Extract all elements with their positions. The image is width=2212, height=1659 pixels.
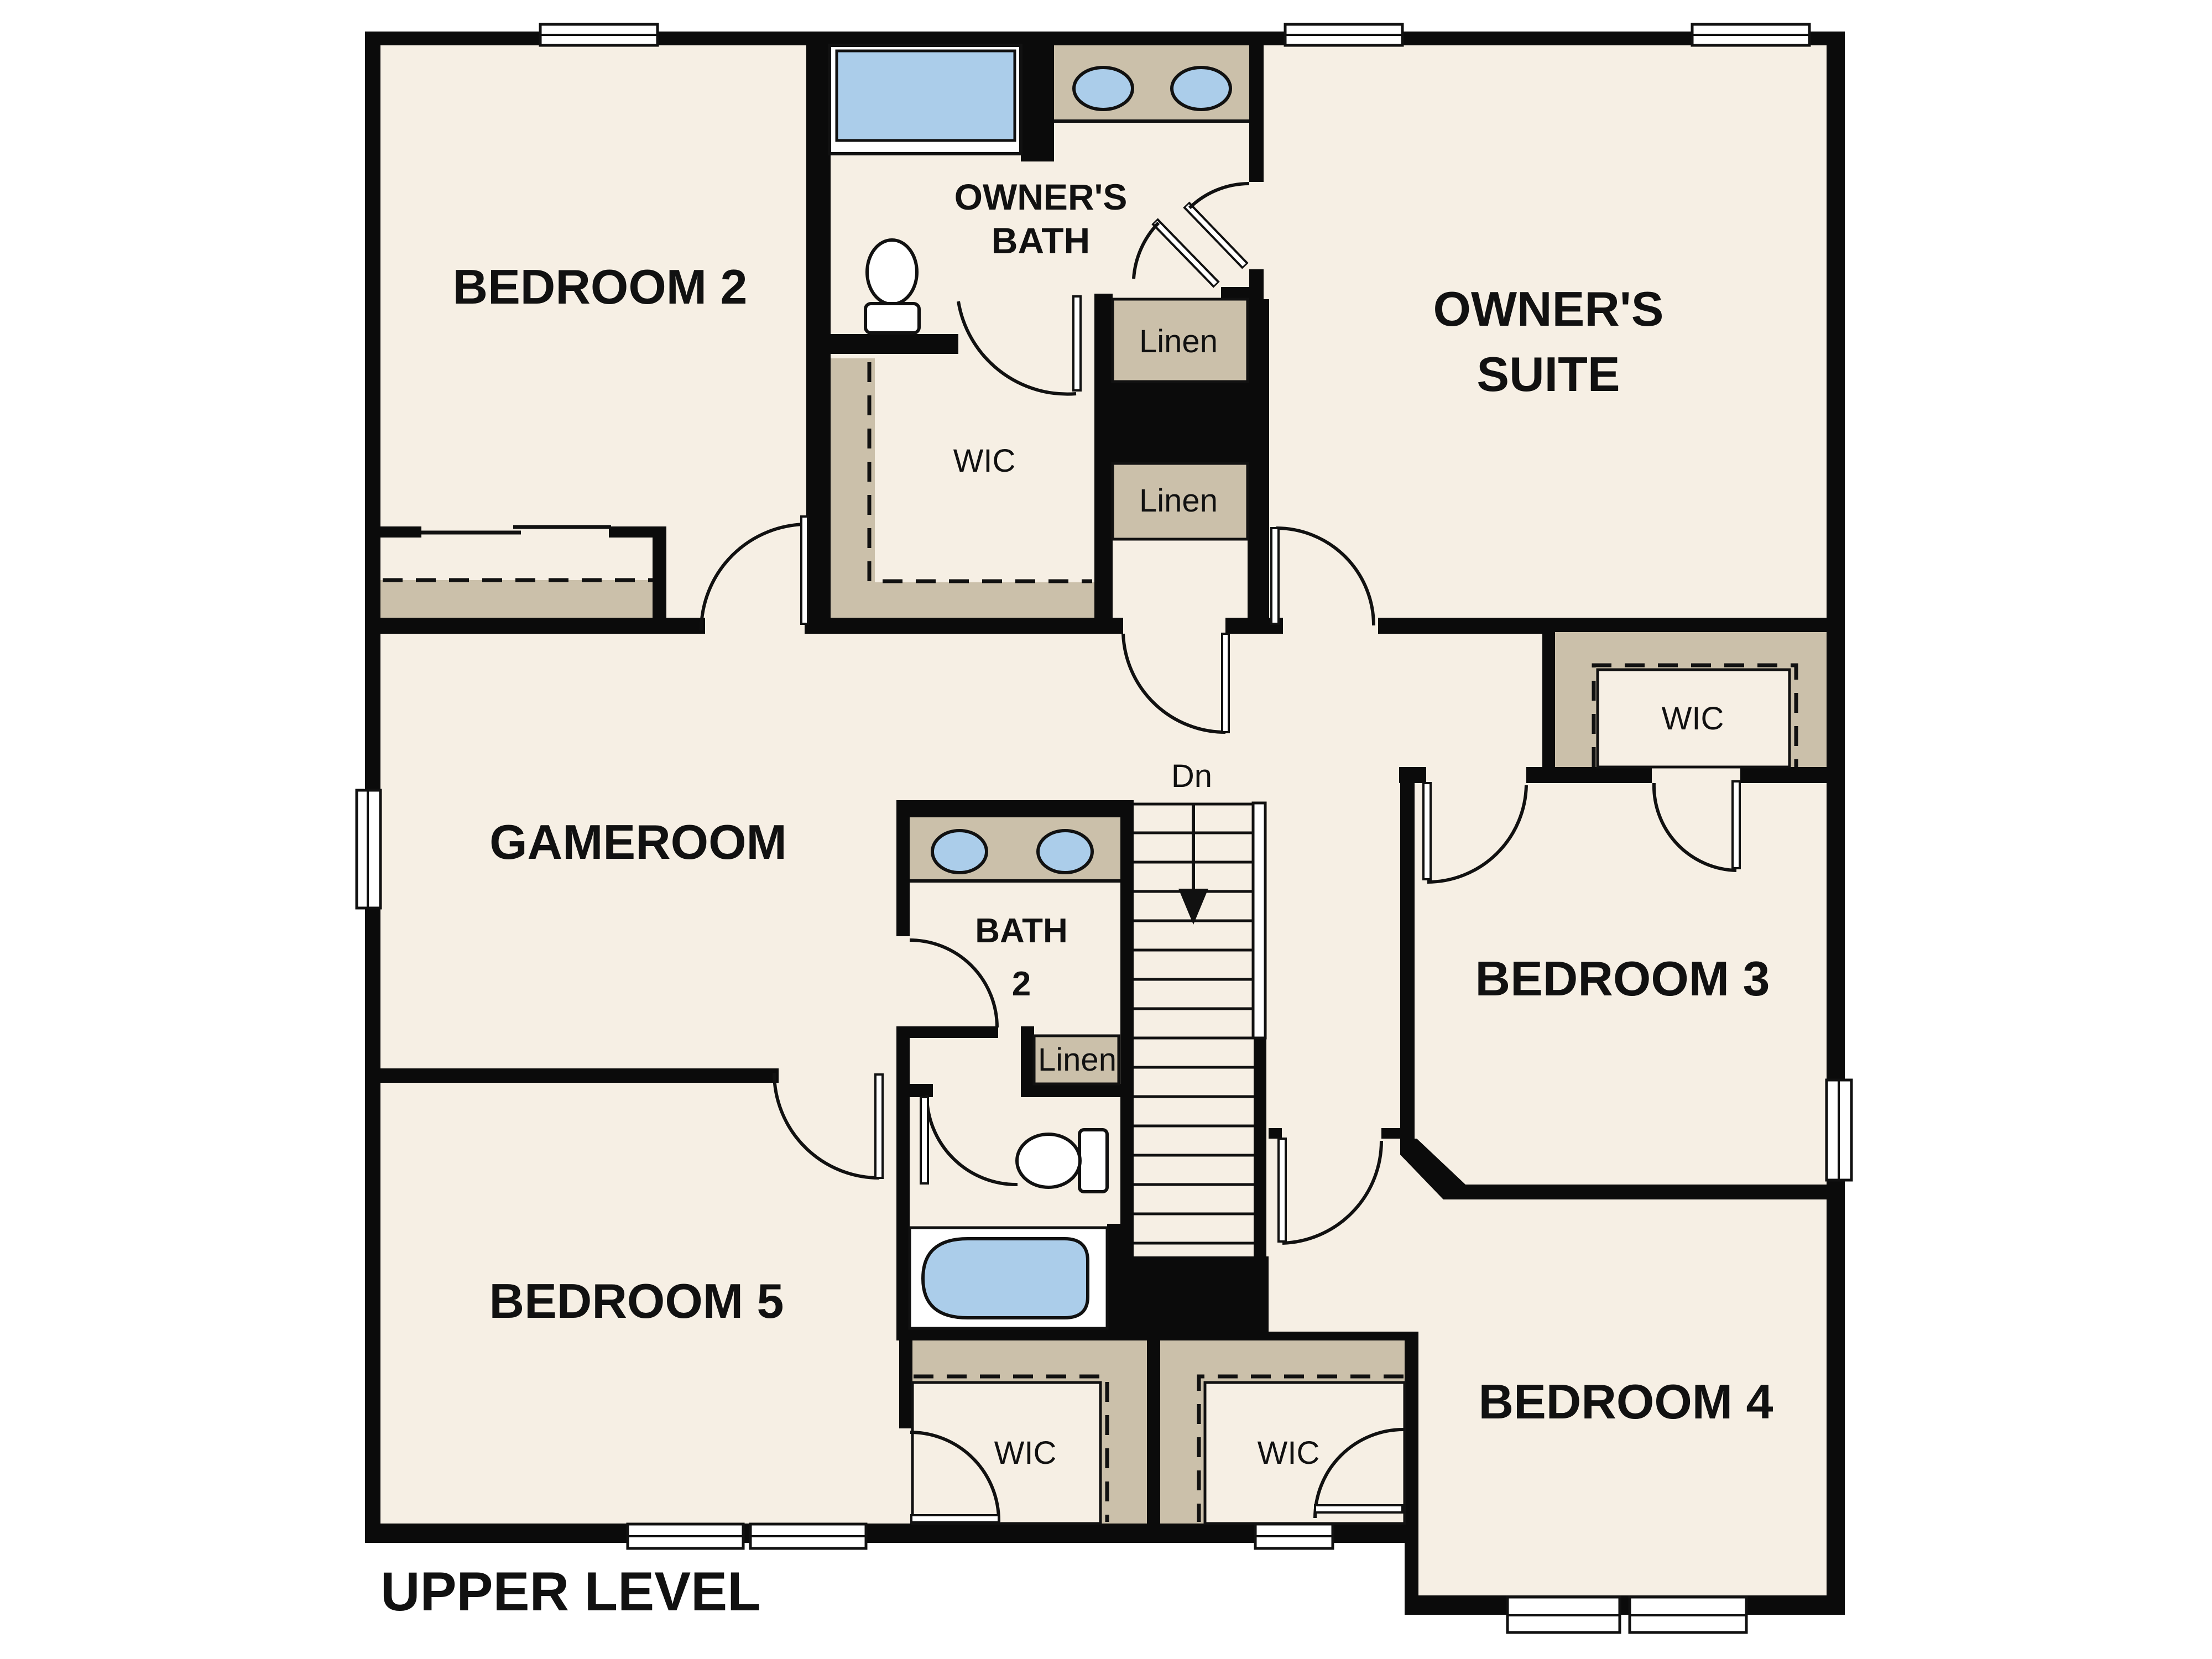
svg-text:WIC: WIC <box>953 443 1016 479</box>
svg-text:SUITE: SUITE <box>1477 347 1620 401</box>
svg-text:Dn: Dn <box>1171 758 1212 794</box>
svg-text:GAMEROOM: GAMEROOM <box>489 815 787 869</box>
svg-text:BEDROOM 3: BEDROOM 3 <box>1475 951 1770 1006</box>
svg-text:2: 2 <box>1012 965 1031 1003</box>
svg-text:UPPER LEVEL: UPPER LEVEL <box>380 1561 761 1622</box>
svg-text:OWNER'S: OWNER'S <box>954 176 1128 217</box>
svg-text:BEDROOM 2: BEDROOM 2 <box>453 259 748 314</box>
svg-text:BEDROOM 5: BEDROOM 5 <box>489 1274 784 1328</box>
svg-text:Linen: Linen <box>1139 324 1218 359</box>
svg-text:Linen: Linen <box>1139 483 1218 519</box>
svg-text:OWNER'S: OWNER'S <box>1433 281 1664 336</box>
svg-text:BATH: BATH <box>992 220 1090 261</box>
svg-text:Linen: Linen <box>1038 1042 1117 1078</box>
svg-text:WIC: WIC <box>1662 701 1724 737</box>
svg-text:WIC: WIC <box>994 1435 1057 1471</box>
svg-text:WIC: WIC <box>1258 1435 1320 1471</box>
svg-text:BATH: BATH <box>975 912 1068 950</box>
svg-text:BEDROOM 4: BEDROOM 4 <box>1479 1374 1773 1429</box>
